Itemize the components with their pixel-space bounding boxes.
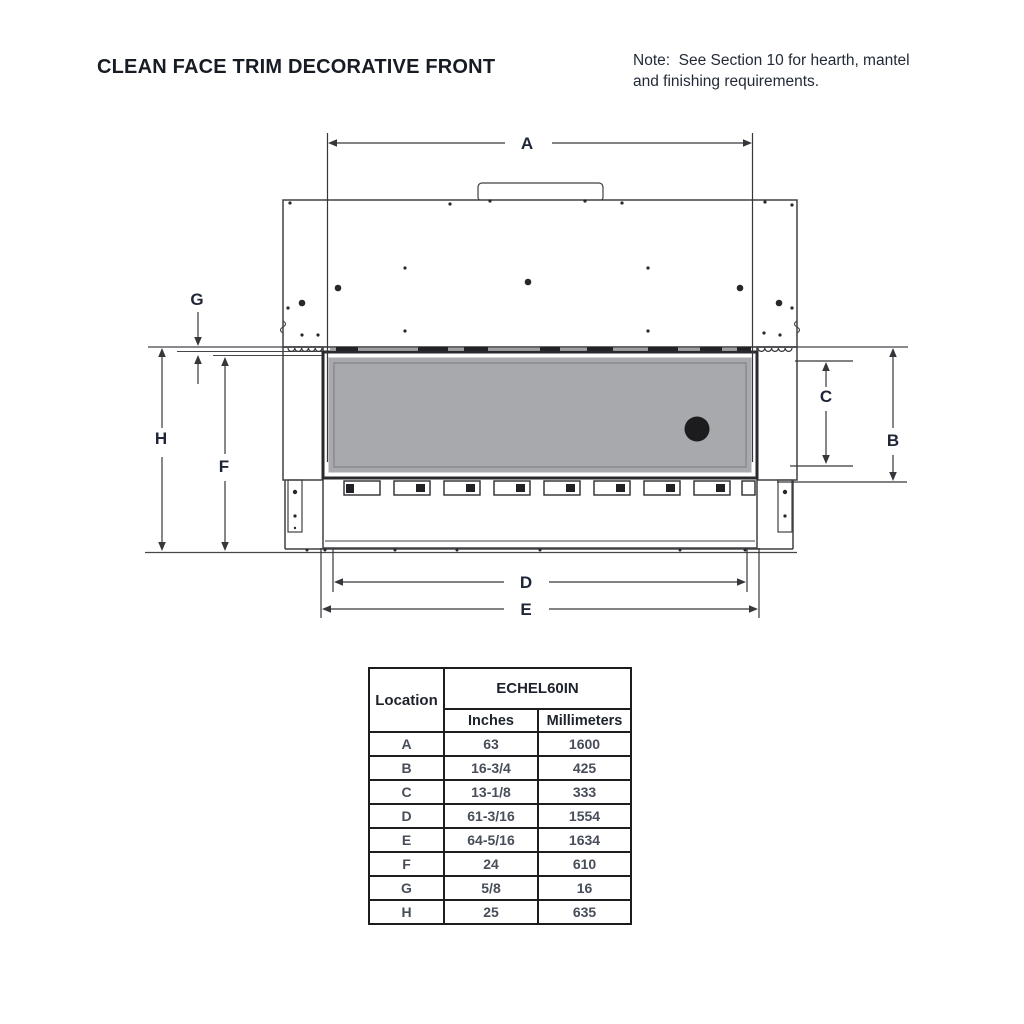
table-row: B 16-3/4 425	[369, 756, 631, 780]
row-location: D	[369, 804, 444, 828]
dim-label-c: C	[820, 387, 832, 406]
upper-surround-panel	[283, 200, 797, 347]
table-row: H 25 635	[369, 900, 631, 924]
row-location: B	[369, 756, 444, 780]
row-mm: 1634	[538, 828, 631, 852]
row-location: F	[369, 852, 444, 876]
row-mm: 425	[538, 756, 631, 780]
glass-panel	[329, 358, 752, 473]
table-row: A 63 1600	[369, 732, 631, 756]
table-header-row: Location ECHEL60IN	[369, 668, 631, 709]
row-inches: 16-3/4	[444, 756, 538, 780]
location-header: Location	[369, 668, 444, 732]
row-location: E	[369, 828, 444, 852]
pilot-port-circle	[685, 417, 710, 442]
table-row: F 24 610	[369, 852, 631, 876]
dim-label-b: B	[887, 431, 899, 450]
top-vent-box	[478, 183, 603, 201]
row-inches: 63	[444, 732, 538, 756]
right-mounting-bracket	[778, 480, 792, 532]
right-side-panel	[757, 347, 797, 480]
row-mm: 1600	[538, 732, 631, 756]
row-mm: 635	[538, 900, 631, 924]
millimeters-header: Millimeters	[538, 709, 631, 732]
lower-body	[323, 478, 757, 548]
row-inches: 64-5/16	[444, 828, 538, 852]
left-mounting-bracket	[288, 480, 302, 532]
bottom-louver-row	[344, 481, 755, 495]
row-mm: 333	[538, 780, 631, 804]
row-location: C	[369, 780, 444, 804]
left-side-panel	[283, 347, 323, 480]
page: { "title": "CLEAN FACE TRIM DECORATIVE F…	[0, 0, 1024, 1024]
dim-label-g: G	[190, 290, 203, 309]
row-mm: 1554	[538, 804, 631, 828]
row-location: G	[369, 876, 444, 900]
dim-label-a: A	[521, 134, 533, 153]
table-row: E 64-5/16 1634	[369, 828, 631, 852]
table-row: D 61-3/16 1554	[369, 804, 631, 828]
row-inches: 24	[444, 852, 538, 876]
table-row: G 5/8 16	[369, 876, 631, 900]
glass-window	[323, 352, 757, 478]
table-row: C 13-1/8 333	[369, 780, 631, 804]
row-inches: 13-1/8	[444, 780, 538, 804]
row-inches: 61-3/16	[444, 804, 538, 828]
dim-label-d: D	[520, 573, 532, 592]
spec-table: Location ECHEL60IN Inches Millimeters A …	[368, 667, 632, 925]
model-header: ECHEL60IN	[444, 668, 631, 709]
row-inches: 25	[444, 900, 538, 924]
row-location: H	[369, 900, 444, 924]
dim-label-e: E	[520, 600, 531, 619]
row-mm: 16	[538, 876, 631, 900]
inches-header: Inches	[444, 709, 538, 732]
row-mm: 610	[538, 852, 631, 876]
dim-label-h: H	[155, 429, 167, 448]
row-inches: 5/8	[444, 876, 538, 900]
row-location: A	[369, 732, 444, 756]
dim-label-f: F	[219, 457, 229, 476]
